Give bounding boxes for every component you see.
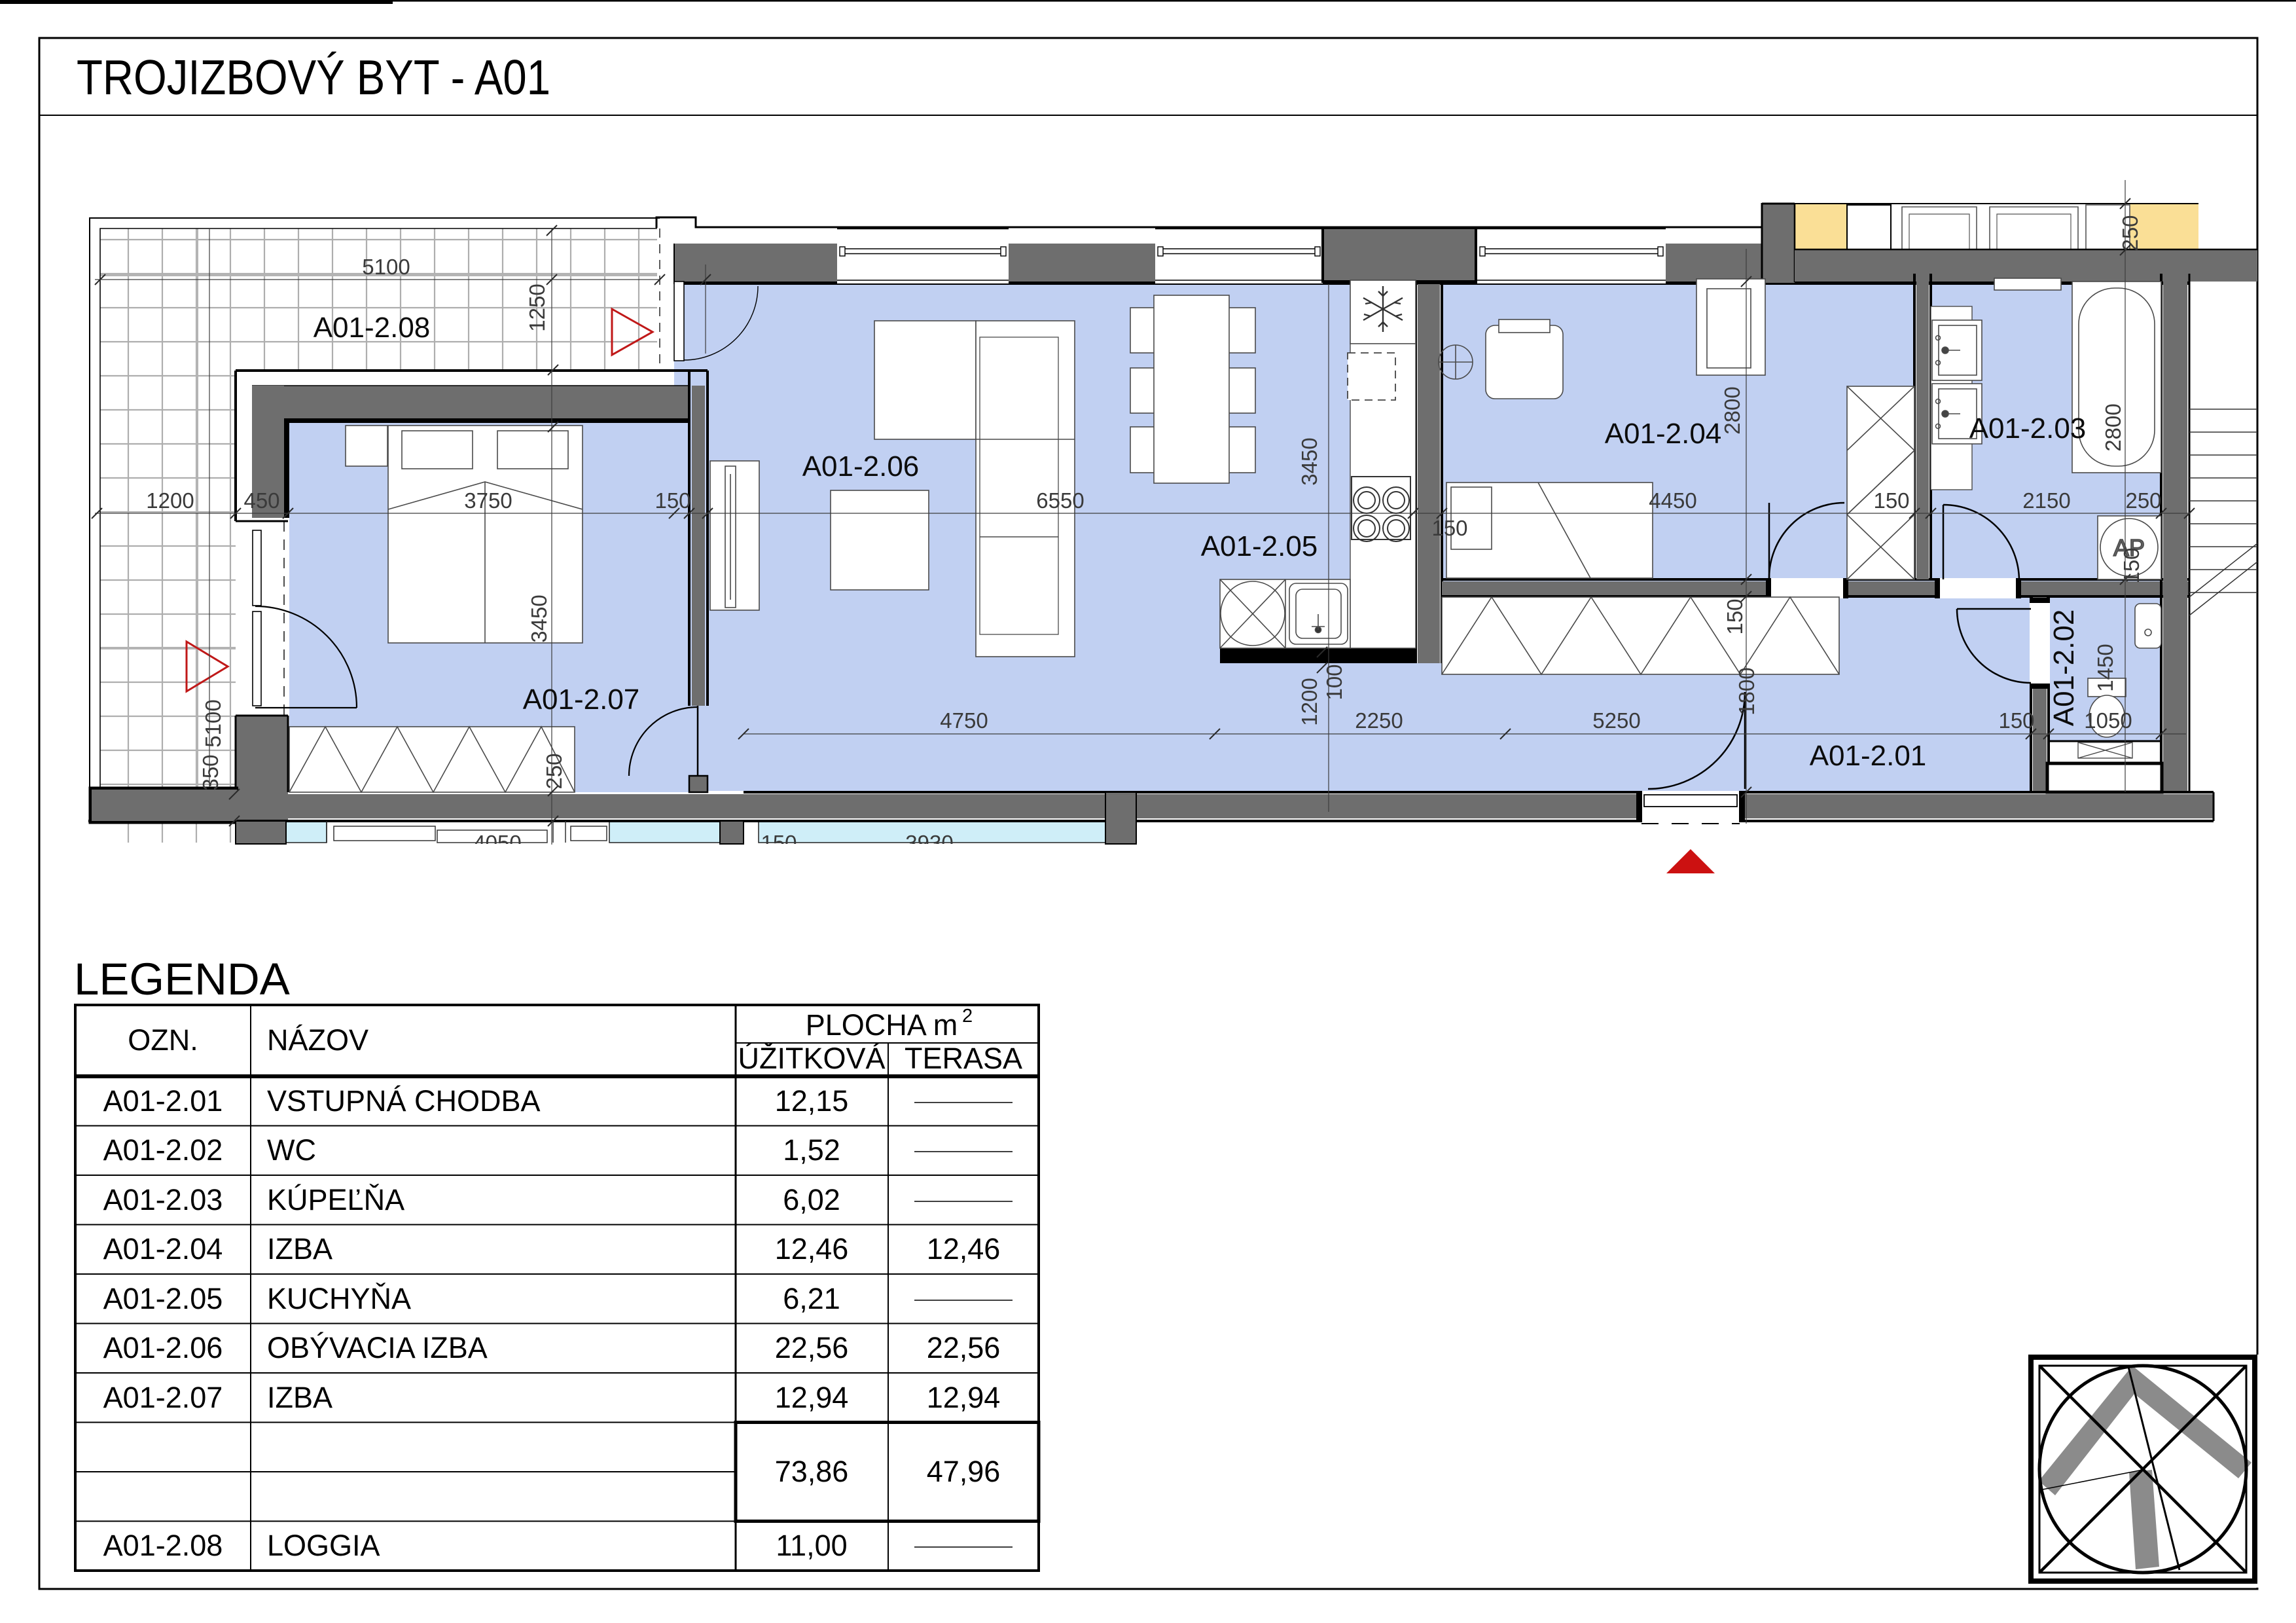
svg-text:11,00: 11,00 xyxy=(776,1529,847,1562)
svg-text:A01-2.05: A01-2.05 xyxy=(103,1282,223,1315)
svg-text:3750: 3750 xyxy=(464,488,512,513)
svg-text:A01-2.01: A01-2.01 xyxy=(103,1084,223,1118)
svg-text:100: 100 xyxy=(1322,664,1346,700)
svg-text:12,94: 12,94 xyxy=(775,1381,849,1414)
svg-text:2250: 2250 xyxy=(1355,708,1403,733)
svg-text:A01-2.02: A01-2.02 xyxy=(2048,610,2080,727)
svg-text:LOGGIA: LOGGIA xyxy=(267,1529,380,1562)
svg-text:12,15: 12,15 xyxy=(775,1084,849,1118)
svg-text:450: 450 xyxy=(243,488,279,513)
svg-text:2800: 2800 xyxy=(1720,386,1744,434)
svg-text:2800: 2800 xyxy=(2101,403,2125,451)
svg-text:OZN.: OZN. xyxy=(128,1023,198,1057)
svg-text:1450: 1450 xyxy=(2093,644,2117,691)
svg-text:TROJIZBOVÝ BYT - A01: TROJIZBOVÝ BYT - A01 xyxy=(77,50,550,105)
svg-text:OBÝVACIA IZBA: OBÝVACIA IZBA xyxy=(267,1331,488,1364)
svg-text:KÚPEĽŇA: KÚPEĽŇA xyxy=(267,1183,404,1216)
svg-text:22,56: 22,56 xyxy=(775,1331,849,1364)
svg-text:22,56: 22,56 xyxy=(927,1331,1001,1364)
svg-text:1200: 1200 xyxy=(146,488,194,513)
svg-text:73,86: 73,86 xyxy=(775,1455,849,1488)
svg-text:A01-2.08: A01-2.08 xyxy=(314,312,431,344)
svg-text:IZBA: IZBA xyxy=(267,1232,332,1266)
svg-text:TERASA: TERASA xyxy=(905,1042,1022,1075)
svg-text:NÁZOV: NÁZOV xyxy=(267,1023,368,1057)
svg-text:1050: 1050 xyxy=(2084,708,2132,733)
svg-text:1200: 1200 xyxy=(1297,678,1321,725)
svg-text:A01-2.03: A01-2.03 xyxy=(103,1183,223,1216)
svg-text:A01-2.07: A01-2.07 xyxy=(523,684,640,716)
svg-text:A01-2.04: A01-2.04 xyxy=(103,1232,223,1266)
svg-text:6,02: 6,02 xyxy=(783,1183,840,1216)
svg-text:A01-2.06: A01-2.06 xyxy=(103,1331,223,1364)
svg-text:A01-2.05: A01-2.05 xyxy=(1201,530,1318,562)
svg-text:WC: WC xyxy=(267,1133,316,1167)
svg-text:5100: 5100 xyxy=(201,699,225,747)
svg-text:12,46: 12,46 xyxy=(927,1232,1001,1266)
svg-text:12,94: 12,94 xyxy=(927,1381,1001,1414)
svg-text:250: 250 xyxy=(2125,488,2161,513)
svg-text:ÚŽITKOVÁ: ÚŽITKOVÁ xyxy=(738,1042,885,1075)
svg-text:12,46: 12,46 xyxy=(775,1232,849,1266)
svg-text:A01-2.03: A01-2.03 xyxy=(1969,412,2087,445)
svg-text:5100: 5100 xyxy=(362,255,410,279)
svg-text:3450: 3450 xyxy=(1297,437,1321,485)
svg-text:150: 150 xyxy=(1723,598,1747,634)
svg-text:KUCHYŇA: KUCHYŇA xyxy=(267,1282,411,1315)
svg-text:A01-2.06: A01-2.06 xyxy=(802,450,920,483)
svg-text:3450: 3450 xyxy=(527,594,551,642)
svg-text:4450: 4450 xyxy=(1649,488,1696,513)
svg-text:250: 250 xyxy=(2118,215,2142,251)
svg-text:150: 150 xyxy=(1431,516,1467,540)
svg-text:2: 2 xyxy=(962,1006,973,1027)
svg-text:6,21: 6,21 xyxy=(783,1282,840,1315)
svg-text:5250: 5250 xyxy=(1592,708,1640,733)
svg-text:IZBA: IZBA xyxy=(267,1381,332,1414)
svg-text:350: 350 xyxy=(198,754,223,790)
svg-text:6550: 6550 xyxy=(1036,488,1084,513)
svg-text:A01-2.08: A01-2.08 xyxy=(103,1529,223,1562)
svg-text:LEGENDA: LEGENDA xyxy=(74,954,290,1004)
svg-text:47,96: 47,96 xyxy=(927,1455,1001,1488)
svg-text:4750: 4750 xyxy=(940,708,988,733)
svg-text:2150: 2150 xyxy=(2022,488,2070,513)
svg-text:VSTUPNÁ CHODBA: VSTUPNÁ CHODBA xyxy=(267,1084,541,1118)
svg-text:A01-2.07: A01-2.07 xyxy=(103,1381,223,1414)
svg-text:A01-2.02: A01-2.02 xyxy=(103,1133,223,1167)
svg-text:150: 150 xyxy=(1873,488,1909,513)
svg-text:1,52: 1,52 xyxy=(783,1133,840,1167)
svg-text:1250: 1250 xyxy=(525,283,549,331)
svg-text:150: 150 xyxy=(2119,547,2144,583)
svg-text:250: 250 xyxy=(542,753,566,789)
svg-text:150: 150 xyxy=(1998,708,2034,733)
svg-text:1800: 1800 xyxy=(1734,667,1759,715)
svg-text:150: 150 xyxy=(655,488,691,513)
svg-text:A01-2.01: A01-2.01 xyxy=(1810,740,1927,772)
svg-text:A01-2.04: A01-2.04 xyxy=(1605,418,1722,450)
svg-text:PLOCHA m: PLOCHA m xyxy=(806,1008,958,1042)
